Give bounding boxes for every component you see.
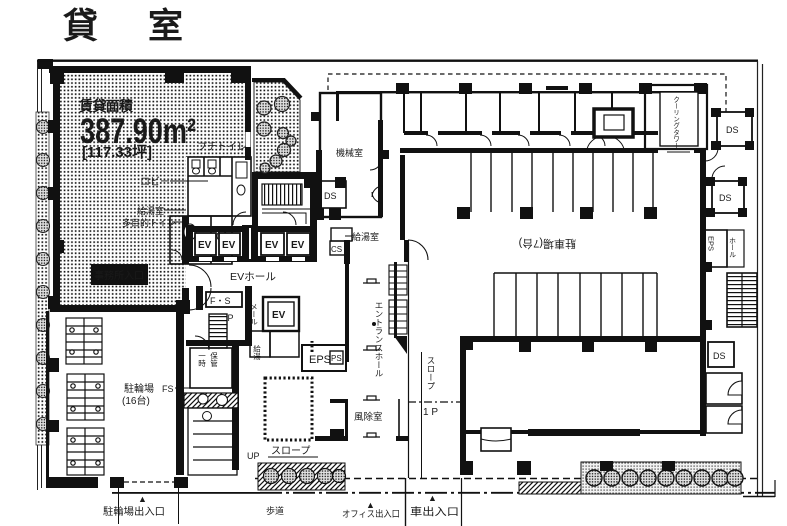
svg-text:ホール: ホール — [729, 237, 737, 258]
svg-text:スロープ: スロープ — [271, 445, 310, 457]
svg-text:1 P: 1 P — [423, 407, 438, 418]
svg-text:▲: ▲ — [138, 494, 147, 504]
svg-text:機械室: 機械室 — [336, 147, 363, 158]
svg-text:DS: DS — [324, 191, 337, 201]
svg-text:EVホール: EVホール — [230, 271, 276, 283]
svg-text:貸室: 貸室 — [63, 6, 233, 46]
svg-text:ロビー: ロビー — [140, 176, 170, 188]
svg-text:EV: EV — [222, 240, 236, 251]
svg-text:プチトイレ: プチトイレ — [197, 141, 247, 153]
svg-text:DS: DS — [726, 125, 739, 135]
svg-text:駐輪場: 駐輪場 — [124, 382, 154, 395]
svg-text:UP: UP — [247, 451, 260, 461]
svg-text:駐輪場出入口: 駐輪場出入口 — [103, 505, 165, 518]
svg-text:CS: CS — [331, 245, 342, 254]
svg-text:▲: ▲ — [428, 493, 437, 503]
svg-text:スロープ: スロープ — [426, 356, 436, 390]
svg-text:EPS: EPS — [309, 354, 331, 366]
svg-text:EV: EV — [198, 240, 212, 251]
svg-text:(16台): (16台) — [122, 394, 150, 407]
svg-text:FS: FS — [162, 384, 174, 394]
svg-text:給湯: 給湯 — [252, 344, 261, 362]
svg-text:DS: DS — [719, 193, 732, 203]
svg-text:多目的トイレ: 多目的トイレ — [122, 217, 176, 228]
svg-text:DS: DS — [713, 351, 726, 361]
svg-text:保管: 保管 — [209, 352, 218, 369]
svg-text:EV: EV — [291, 240, 305, 251]
svg-text:車出入口: 車出入口 — [410, 505, 459, 518]
svg-text:EPS: EPS — [707, 236, 716, 251]
svg-text:事務所入口: 事務所入口 — [94, 269, 144, 282]
svg-text:エントランスホール: エントランスホール — [374, 301, 384, 378]
svg-text:メール: メール — [249, 303, 258, 326]
svg-text:オフィス出入口: オフィス出入口 — [342, 508, 400, 519]
svg-text:風除室: 風除室 — [354, 411, 383, 423]
svg-text:給湯室: 給湯室 — [137, 205, 164, 216]
svg-text:給湯室: 給湯室 — [352, 231, 379, 242]
svg-text:駐車場(7台): 駐車場(7台) — [519, 237, 576, 251]
svg-text:[117.33坪]: [117.33坪] — [82, 144, 152, 161]
svg-text:EV: EV — [272, 310, 286, 321]
svg-text:F・S: F・S — [210, 296, 231, 306]
svg-text:PS: PS — [331, 354, 342, 363]
svg-text:歩道: 歩道 — [266, 505, 284, 516]
svg-text:EV: EV — [265, 240, 279, 251]
svg-text:一時: 一時 — [197, 352, 206, 367]
